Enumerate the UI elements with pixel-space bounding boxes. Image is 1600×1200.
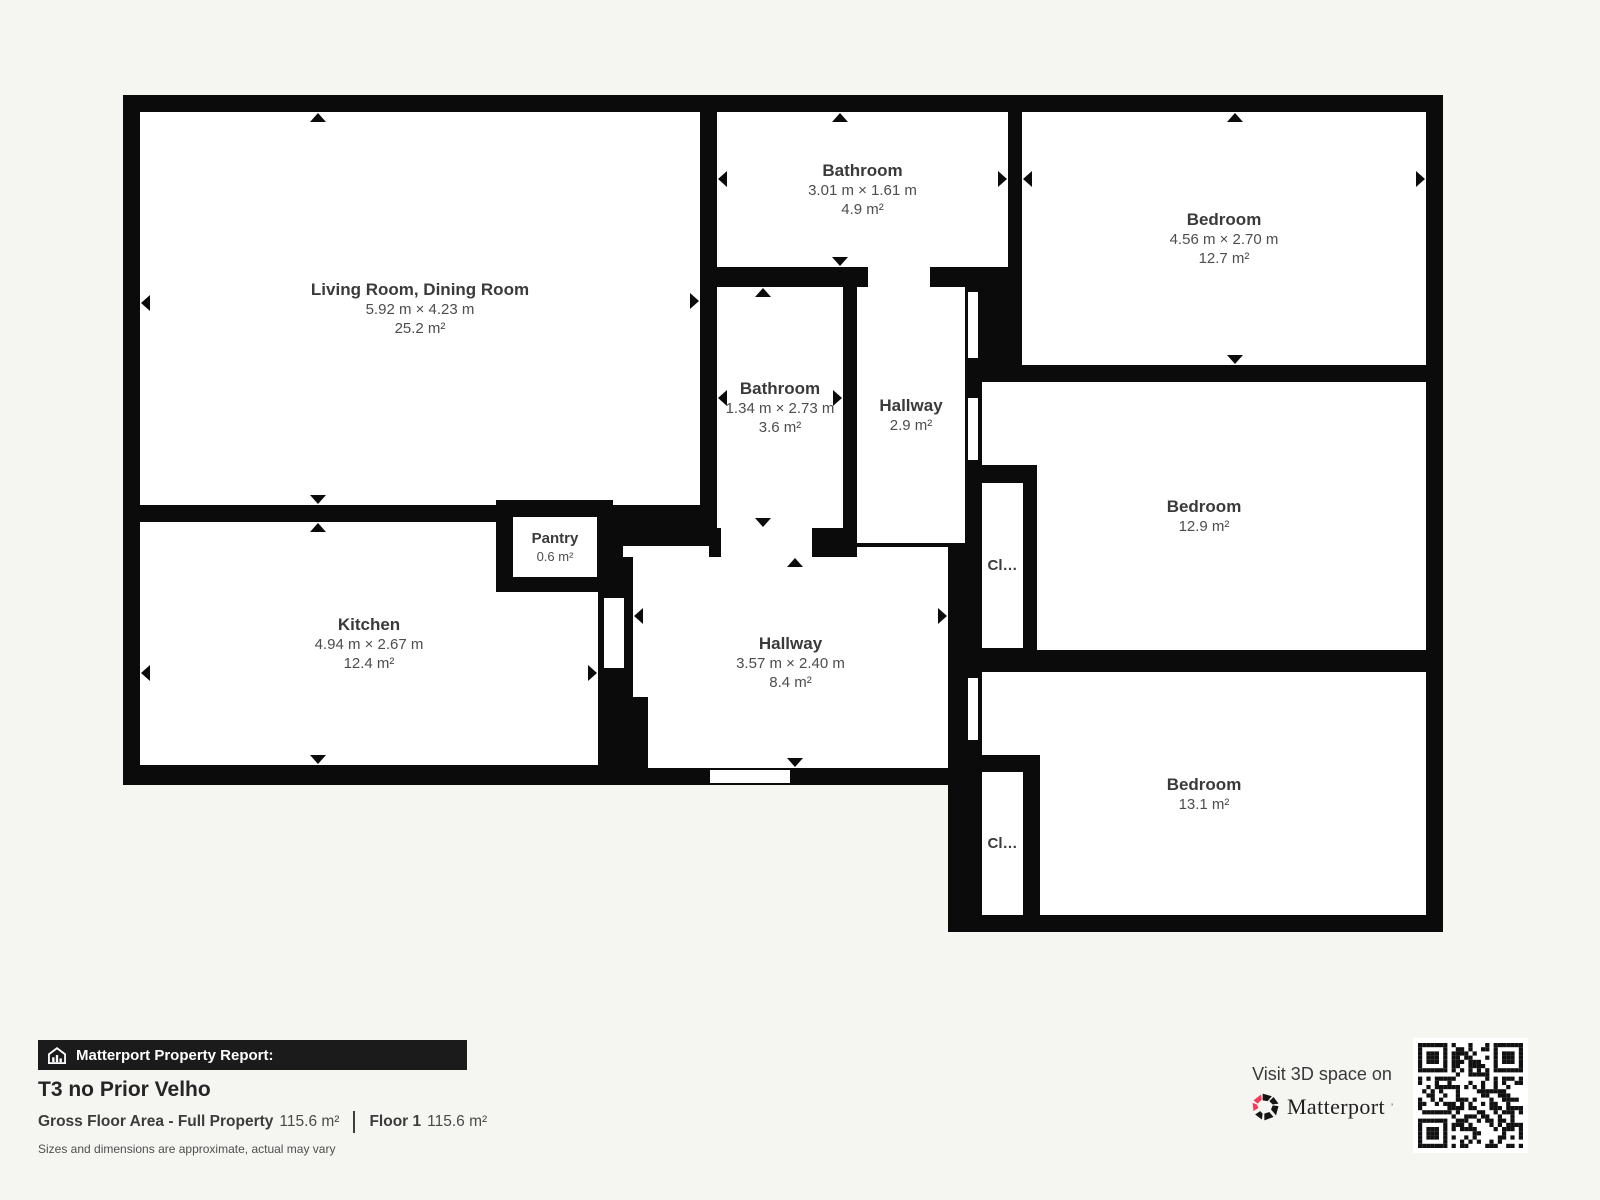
room-dims: 4.94 m × 2.67 m: [315, 635, 424, 654]
floor-plan: Living Room, Dining Room 5.92 m × 4.23 m…: [0, 0, 1600, 1200]
dimension-arrow-down: [310, 495, 326, 504]
dimension-arrow-down: [787, 758, 803, 767]
room-living-dining: Living Room, Dining Room 5.92 m × 4.23 m…: [140, 112, 700, 505]
room-pantry: Pantry 0.6 m²: [513, 517, 597, 577]
dimension-arrow-up: [1227, 113, 1243, 122]
door-opening: [604, 598, 624, 668]
dimension-arrow-right: [998, 171, 1007, 187]
room-name: Kitchen: [338, 614, 400, 635]
room-bathroom-mid: Bathroom 1.34 m × 2.73 m 3.6 m²: [717, 287, 843, 528]
report-banner: Matterport Property Report:: [38, 1040, 467, 1070]
visit-3d-text: Visit 3D space on: [1232, 1064, 1412, 1085]
dimension-arrow-left: [141, 665, 150, 681]
dimension-arrow-right: [588, 665, 597, 681]
room-dims: 5.92 m × 4.23 m: [366, 300, 475, 319]
dimension-arrow-right: [690, 293, 699, 309]
room-dims: 1.34 m × 2.73 m: [726, 399, 835, 418]
dimension-arrow-right: [938, 608, 947, 624]
room-area: 25.2 m²: [395, 319, 446, 338]
dimension-arrow-left: [141, 295, 150, 311]
dimension-arrow-right: [833, 390, 842, 406]
matterport-wordmark: Matterport: [1287, 1094, 1385, 1120]
room-name: Bedroom: [1167, 774, 1242, 795]
door-opening: [623, 546, 709, 557]
room-bedroom-top: Bedroom 4.56 m × 2.70 m 12.7 m²: [1022, 112, 1426, 365]
door-opening: [857, 547, 948, 557]
house-report-icon: [48, 1047, 66, 1064]
room-name: Hallway: [879, 395, 942, 416]
gfa-label: Gross Floor Area - Full Property: [38, 1113, 273, 1131]
door-opening: [968, 678, 978, 740]
visit-3d-promo: Visit 3D space on Matterport ’: [1232, 1064, 1412, 1122]
room-hallway-main: Hallway 3.57 m × 2.40 m 8.4 m²: [633, 557, 948, 768]
room-area: 0.6 m²: [537, 548, 574, 565]
room-name: Pantry: [532, 530, 579, 548]
qr-code-pattern: [1413, 1038, 1528, 1153]
dimension-arrow-up: [310, 113, 326, 122]
closet-1: Cl…: [982, 483, 1023, 648]
room-bedroom-bottom: Bedroom 13.1 m²: [982, 672, 1426, 915]
room-name: Living Room, Dining Room: [311, 279, 529, 300]
door-opening: [721, 528, 812, 557]
room-area: 12.9 m²: [1179, 517, 1230, 536]
room-dims: 4.56 m × 2.70 m: [1170, 230, 1279, 249]
dimension-arrow-right: [1416, 171, 1425, 187]
dimension-arrow-left: [718, 390, 727, 406]
dimension-arrow-up: [310, 523, 326, 532]
room-area: 13.1 m²: [1179, 795, 1230, 814]
dimension-arrow-down: [1227, 355, 1243, 364]
room-dims: 3.01 m × 1.61 m: [808, 181, 917, 200]
dimension-arrow-left: [1023, 171, 1032, 187]
gfa-value: 115.6 m²: [279, 1113, 339, 1131]
dimension-arrow-down: [755, 518, 771, 527]
report-banner-label: Matterport Property Report:: [76, 1047, 274, 1064]
room-name: Bedroom: [1167, 496, 1242, 517]
dimension-arrow-down: [832, 257, 848, 266]
door-opening: [868, 267, 930, 287]
dimension-arrow-down: [310, 755, 326, 764]
room-area: 3.6 m²: [759, 418, 802, 437]
dimension-arrow-left: [718, 171, 727, 187]
door-opening: [968, 292, 978, 358]
room-bathroom-top: Bathroom 3.01 m × 1.61 m 4.9 m²: [717, 112, 1008, 267]
floor-label: Floor 1: [369, 1113, 421, 1131]
dimension-arrow-left: [634, 608, 643, 624]
room-area: 2.9 m²: [890, 416, 933, 435]
door-opening: [968, 398, 978, 460]
floor-value: 115.6 m²: [427, 1113, 487, 1131]
wall-stub: [630, 697, 648, 768]
trademark-symbol: ’: [1391, 1102, 1393, 1112]
property-title: T3 no Prior Velho: [38, 1078, 211, 1102]
room-area: 8.4 m²: [769, 673, 812, 692]
room-name: Bathroom: [740, 378, 820, 399]
room-dims: 3.57 m × 2.40 m: [736, 654, 845, 673]
room-name: Bedroom: [1187, 209, 1262, 230]
dimension-arrow-up: [787, 558, 803, 567]
closet-label: Cl…: [988, 835, 1018, 853]
room-area: 12.4 m²: [344, 654, 395, 673]
room-area: 12.7 m²: [1199, 249, 1250, 268]
closet-2: Cl…: [982, 772, 1023, 915]
matterport-brand: Matterport ’: [1232, 1092, 1412, 1122]
qr-code: [1413, 1038, 1528, 1153]
dimension-arrow-up: [755, 288, 771, 297]
stats-divider: [353, 1111, 355, 1133]
disclaimer-text: Sizes and dimensions are approximate, ac…: [38, 1142, 335, 1156]
room-name: Bathroom: [822, 160, 902, 181]
room-name: Hallway: [759, 633, 822, 654]
room-hallway-small: Hallway 2.9 m²: [857, 287, 965, 543]
matterport-logo-icon: [1251, 1092, 1281, 1122]
room-area: 4.9 m²: [841, 200, 884, 219]
area-stats: Gross Floor Area - Full Property 115.6 m…: [38, 1111, 487, 1133]
closet-label: Cl…: [988, 557, 1018, 575]
door-opening: [710, 770, 790, 783]
dimension-arrow-up: [832, 113, 848, 122]
room-bedroom-mid: Bedroom 12.9 m²: [982, 382, 1426, 650]
